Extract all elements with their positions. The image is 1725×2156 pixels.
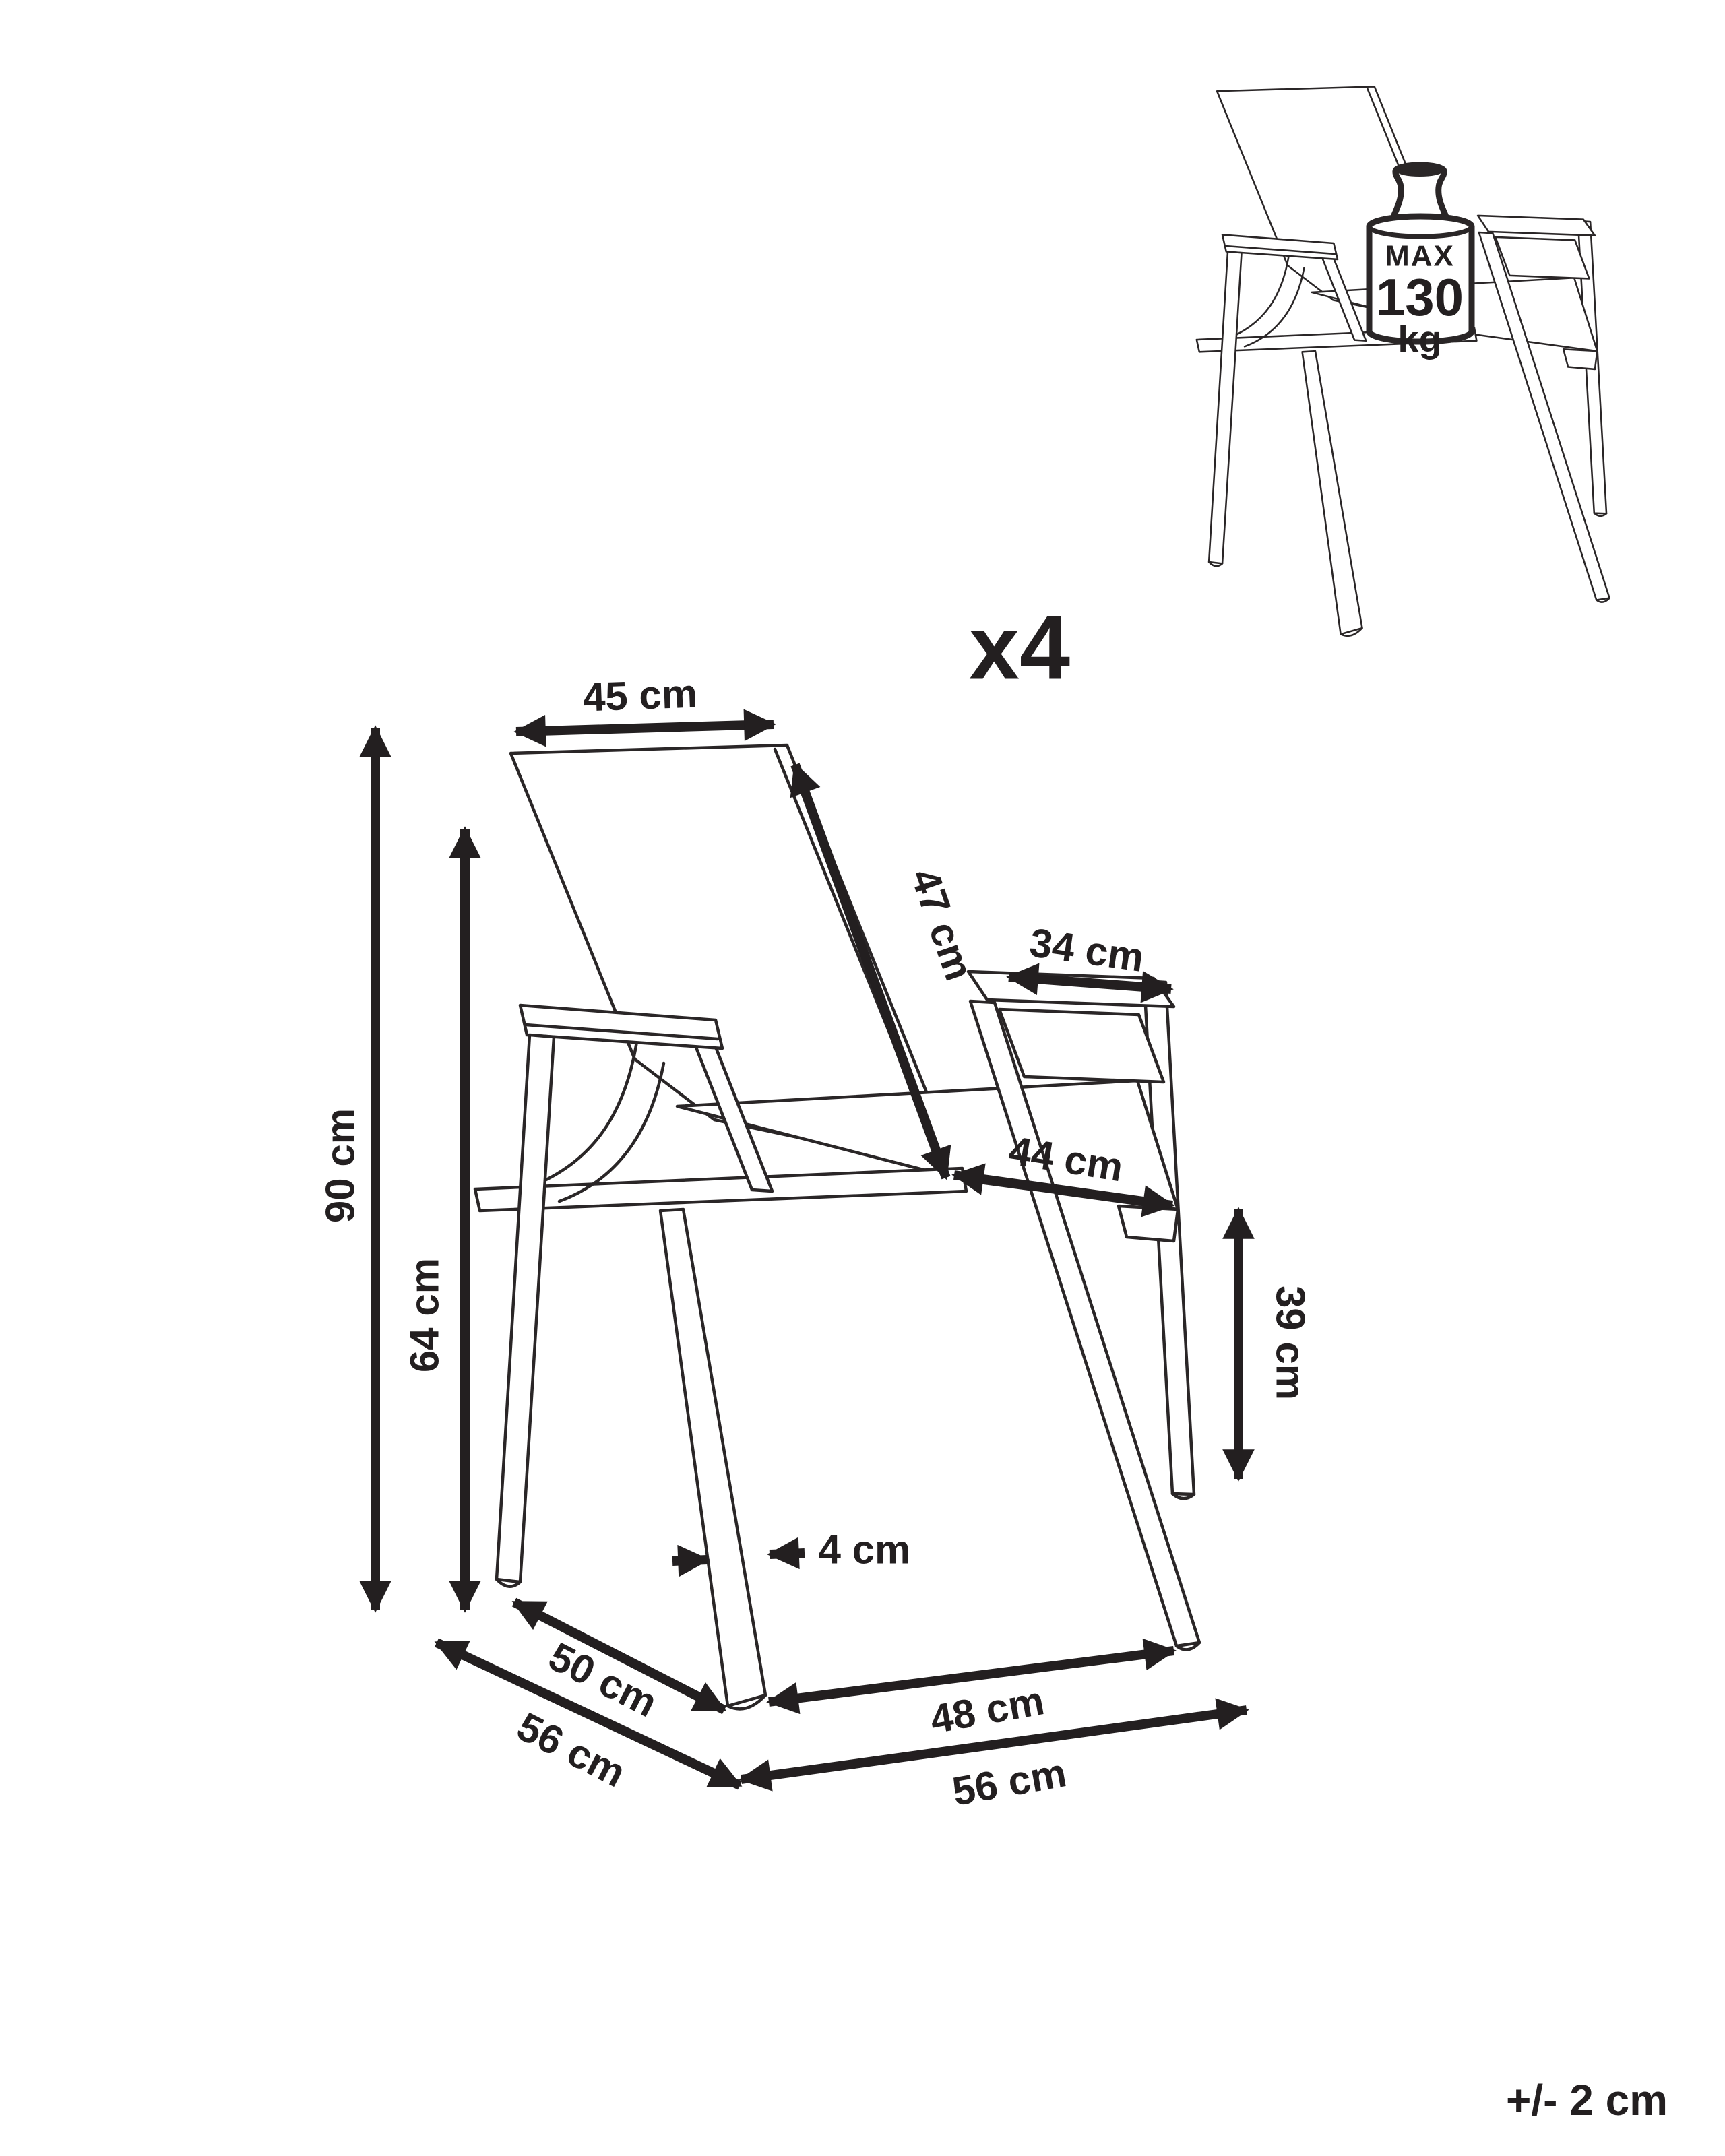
chair-front-left-leg bbox=[497, 1035, 554, 1582]
backrest-width-arrow bbox=[516, 724, 774, 732]
tolerance-label: +/- 2 cm bbox=[1506, 2076, 1668, 2124]
backrest-width-label: 45 cm bbox=[582, 671, 698, 720]
seat-width-label: 48 cm bbox=[927, 1678, 1047, 1742]
armrest-height-label: 64 cm bbox=[402, 1258, 447, 1372]
dimension-diagram-page: MAX 130 kg 45 cm 47 cm 34 cm 44 cm 90 cm… bbox=[0, 0, 1725, 2156]
overall-depth-label: 56 cm bbox=[510, 1704, 633, 1796]
overall-width-label: 56 cm bbox=[949, 1750, 1069, 1814]
frame-thickness-arrow-right bbox=[770, 1553, 805, 1554]
backrest-height-label: 47 cm bbox=[902, 863, 982, 986]
chair-seat-corner-bracket bbox=[1119, 1206, 1178, 1241]
chair-seat-rail bbox=[475, 1168, 966, 1211]
chair-right-armrest-inner bbox=[999, 1009, 1164, 1082]
armrest-length-label: 34 cm bbox=[1027, 920, 1147, 980]
max-load-unit: kg bbox=[1398, 318, 1441, 360]
weight-knob-top bbox=[1398, 167, 1442, 177]
diagram-canvas: MAX 130 kg 45 cm 47 cm 34 cm 44 cm 90 cm… bbox=[0, 0, 1725, 2156]
quantity-label: x4 bbox=[969, 597, 1070, 699]
overall-height-label: 90 cm bbox=[318, 1108, 363, 1223]
chair-back-left-leg bbox=[660, 1209, 765, 1706]
seat-height-label: 39 cm bbox=[1268, 1286, 1313, 1400]
frame-thickness-arrow-left bbox=[672, 1560, 708, 1561]
frame-thickness-label: 4 cm bbox=[819, 1527, 911, 1573]
